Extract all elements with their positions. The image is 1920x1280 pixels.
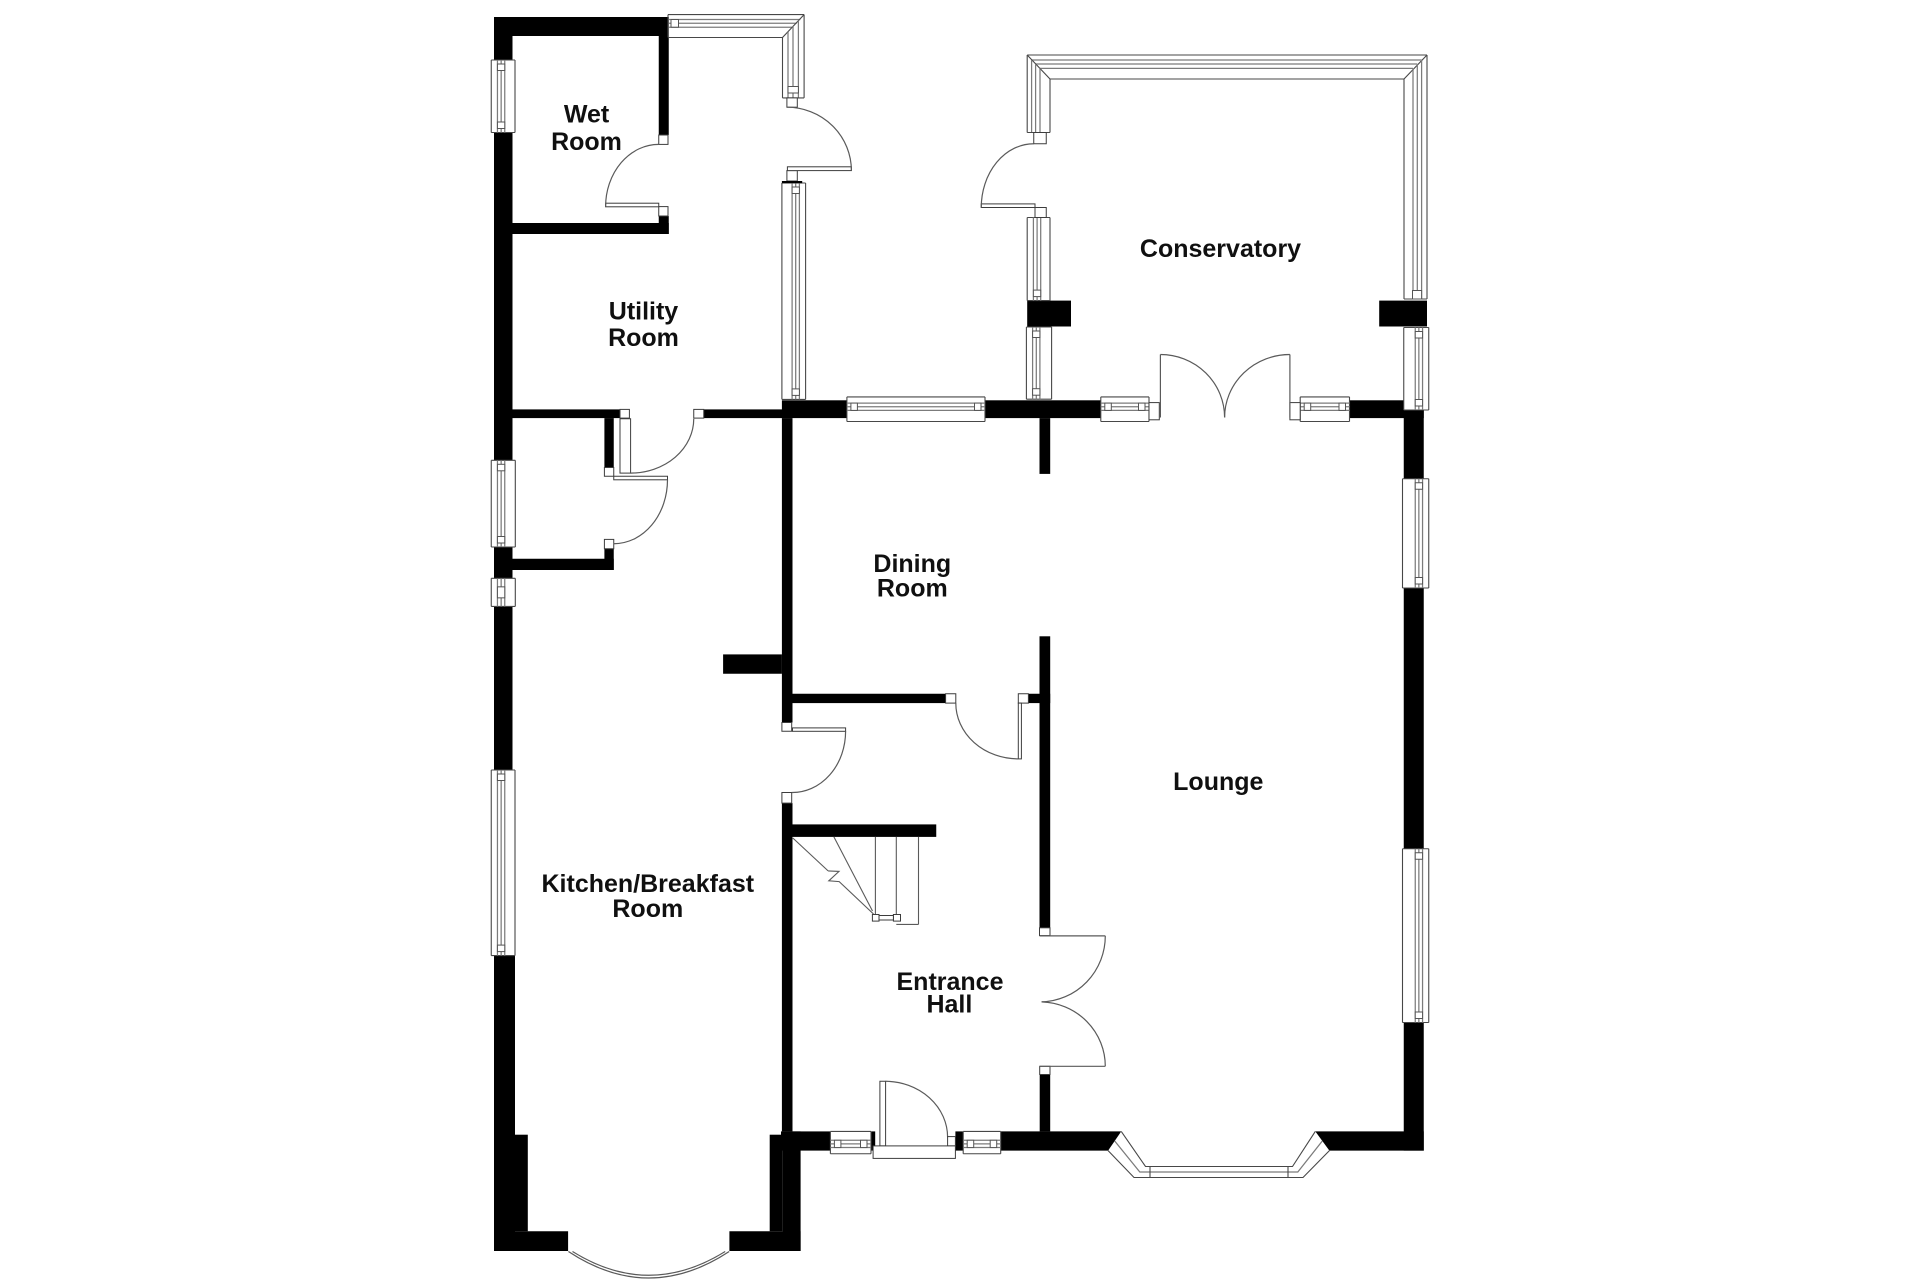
svg-text:Utility: Utility	[609, 298, 679, 326]
svg-text:Room: Room	[612, 895, 683, 923]
svg-text:Conservatory: Conservatory	[1140, 235, 1301, 263]
svg-text:Hall: Hall	[926, 991, 972, 1019]
svg-text:Room: Room	[551, 128, 622, 156]
svg-text:Kitchen/Breakfast: Kitchen/Breakfast	[542, 870, 755, 898]
svg-text:Room: Room	[877, 575, 948, 603]
svg-text:Lounge: Lounge	[1173, 768, 1263, 796]
svg-text:Wet: Wet	[564, 101, 610, 129]
svg-text:Room: Room	[608, 324, 679, 352]
